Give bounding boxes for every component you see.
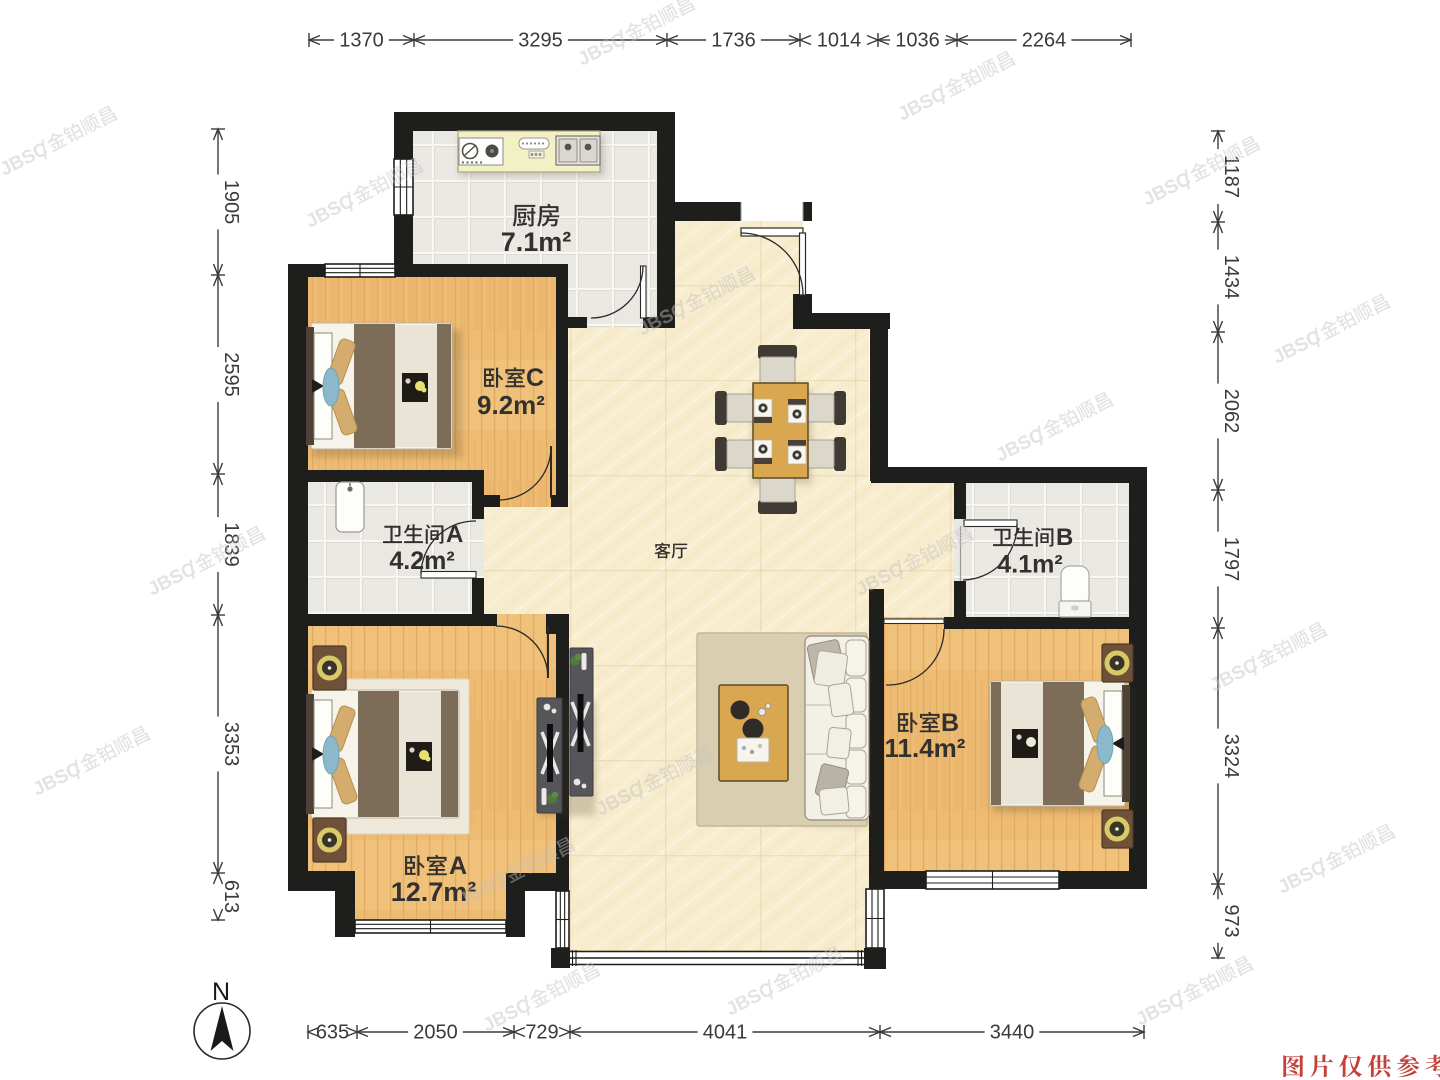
svg-text:3440: 3440 bbox=[990, 1022, 1035, 1044]
svg-text:3324: 3324 bbox=[1220, 734, 1242, 779]
svg-text:11.4m²: 11.4m² bbox=[885, 733, 966, 763]
svg-text:1036: 1036 bbox=[895, 30, 940, 52]
svg-text:4.1m²: 4.1m² bbox=[997, 551, 1062, 579]
svg-text:613: 613 bbox=[220, 880, 242, 913]
svg-text:9.2m²: 9.2m² bbox=[477, 390, 545, 420]
svg-text:A: A bbox=[446, 521, 463, 548]
svg-text:4041: 4041 bbox=[703, 1022, 748, 1044]
svg-text:C: C bbox=[526, 364, 544, 392]
svg-text:1736: 1736 bbox=[711, 30, 756, 52]
svg-text:2062: 2062 bbox=[1220, 389, 1242, 434]
svg-text:2050: 2050 bbox=[413, 1022, 458, 1044]
svg-text:2264: 2264 bbox=[1022, 30, 1067, 52]
svg-text:3295: 3295 bbox=[518, 30, 563, 52]
svg-text:1370: 1370 bbox=[339, 30, 384, 52]
svg-text:4.2m²: 4.2m² bbox=[389, 547, 454, 575]
svg-text:1014: 1014 bbox=[817, 30, 862, 52]
svg-text:1434: 1434 bbox=[1220, 255, 1242, 300]
svg-text:N: N bbox=[212, 978, 230, 1006]
svg-text:3353: 3353 bbox=[220, 722, 242, 767]
svg-text:1797: 1797 bbox=[1220, 537, 1242, 582]
svg-text:7.1m²: 7.1m² bbox=[501, 227, 572, 257]
svg-text:B: B bbox=[1056, 524, 1073, 551]
svg-text:635: 635 bbox=[316, 1022, 349, 1044]
svg-text:A: A bbox=[449, 852, 467, 880]
svg-text:1905: 1905 bbox=[220, 180, 242, 225]
svg-text:2595: 2595 bbox=[220, 352, 242, 397]
svg-text:973: 973 bbox=[1220, 904, 1242, 937]
svg-text:729: 729 bbox=[525, 1022, 558, 1044]
